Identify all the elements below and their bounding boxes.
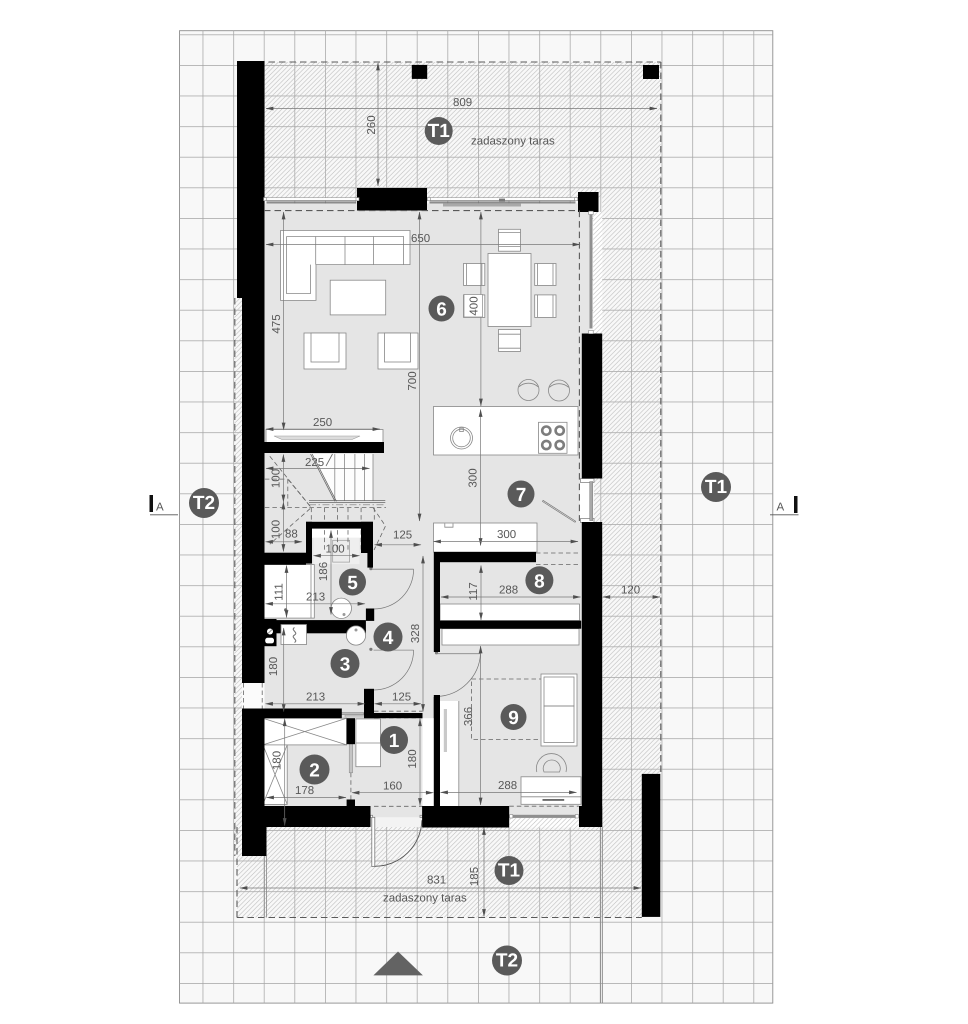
svg-text:160: 160 [383, 781, 402, 793]
svg-text:300: 300 [497, 529, 516, 541]
svg-text:125: 125 [392, 692, 411, 704]
svg-text:250: 250 [313, 417, 332, 429]
svg-text:328: 328 [410, 624, 422, 643]
svg-text:T1: T1 [705, 477, 728, 498]
svg-text:3: 3 [340, 655, 351, 676]
svg-text:2: 2 [309, 761, 320, 782]
svg-text:120: 120 [621, 585, 640, 597]
svg-text:831: 831 [427, 875, 446, 887]
svg-text:225: 225 [305, 457, 324, 469]
svg-text:4: 4 [383, 628, 394, 649]
svg-text:88: 88 [285, 529, 298, 541]
svg-text:400: 400 [469, 296, 481, 315]
svg-text:A: A [156, 502, 164, 514]
svg-text:A: A [777, 502, 785, 514]
svg-text:T1: T1 [498, 861, 521, 882]
svg-text:180: 180 [272, 751, 284, 770]
svg-text:288: 288 [498, 780, 517, 792]
svg-text:zadaszony taras: zadaszony taras [383, 893, 467, 905]
svg-text:288: 288 [499, 585, 518, 597]
svg-text:5: 5 [347, 573, 358, 594]
svg-text:125: 125 [393, 530, 412, 542]
svg-text:8: 8 [534, 571, 545, 592]
svg-text:186: 186 [318, 562, 330, 581]
svg-text:1: 1 [389, 731, 400, 752]
svg-text:100: 100 [326, 544, 345, 556]
svg-text:100: 100 [271, 469, 283, 488]
svg-text:T2: T2 [496, 951, 518, 972]
svg-text:7: 7 [516, 485, 527, 506]
svg-text:100: 100 [271, 520, 283, 539]
svg-text:366: 366 [463, 707, 475, 726]
svg-text:111: 111 [274, 583, 286, 600]
svg-text:700: 700 [407, 371, 419, 390]
svg-text:650: 650 [411, 233, 430, 245]
svg-text:117: 117 [468, 582, 480, 600]
svg-text:T2: T2 [193, 493, 215, 514]
svg-text:T1: T1 [428, 121, 451, 142]
svg-text:180: 180 [407, 749, 419, 768]
svg-text:178: 178 [295, 785, 314, 797]
svg-text:6: 6 [436, 300, 447, 321]
svg-text:260: 260 [366, 115, 378, 134]
svg-text:185: 185 [469, 867, 481, 886]
svg-text:809: 809 [453, 97, 472, 109]
svg-text:213: 213 [306, 592, 325, 604]
svg-text:213: 213 [306, 692, 325, 704]
svg-text:180: 180 [268, 657, 280, 676]
svg-text:475: 475 [271, 314, 283, 333]
svg-text:zadaszony taras: zadaszony taras [471, 136, 555, 148]
svg-text:9: 9 [508, 708, 519, 729]
svg-text:300: 300 [468, 468, 480, 487]
